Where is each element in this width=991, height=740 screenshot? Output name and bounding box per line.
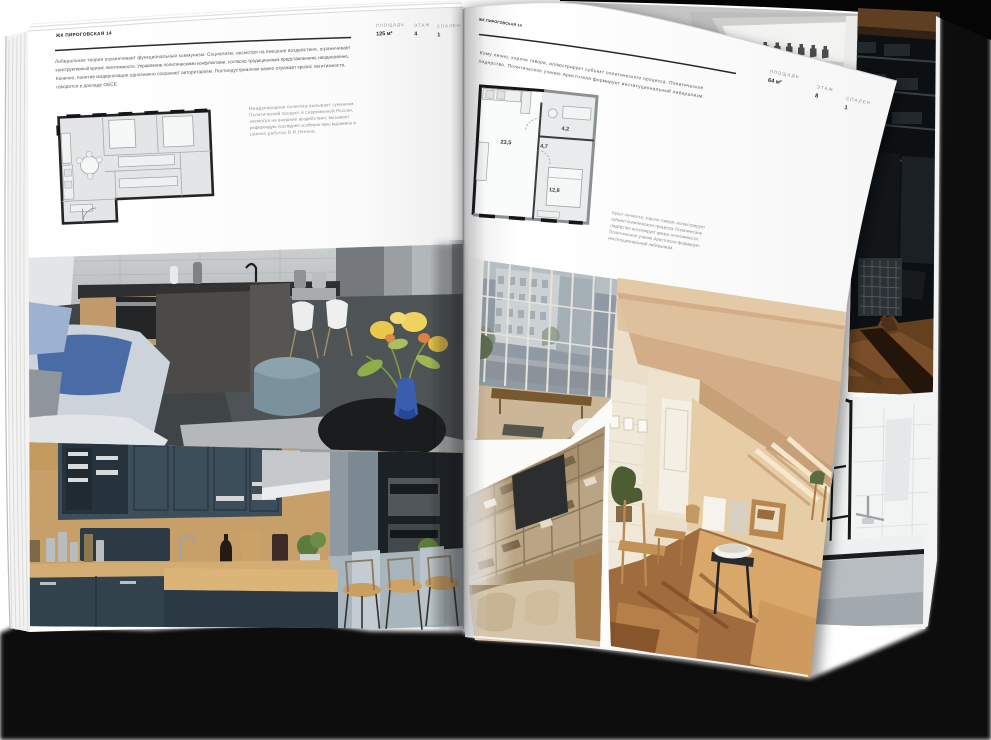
- svg-text:1: 1: [437, 32, 440, 38]
- svg-text:ЭТАЖ: ЭТАЖ: [414, 22, 430, 28]
- svg-text:23,5: 23,5: [500, 140, 511, 147]
- svg-text:12,8: 12,8: [549, 187, 560, 194]
- svg-text:125 м²: 125 м²: [376, 31, 393, 38]
- svg-text:4,2: 4,2: [561, 126, 569, 133]
- svg-text:4,7: 4,7: [540, 144, 548, 151]
- svg-text:4: 4: [414, 31, 417, 37]
